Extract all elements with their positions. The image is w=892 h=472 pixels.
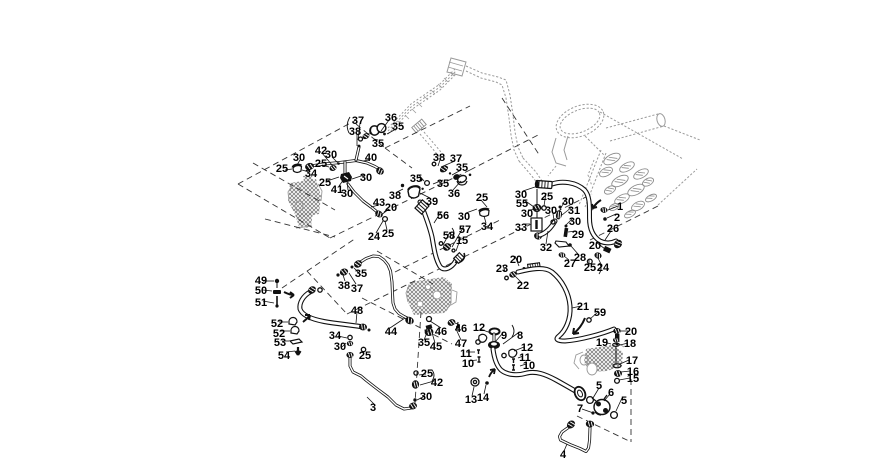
- svg-text:15: 15: [627, 373, 639, 385]
- svg-text:15: 15: [456, 235, 468, 247]
- svg-text:48: 48: [351, 305, 363, 317]
- svg-text:46: 46: [435, 326, 447, 338]
- svg-text:9: 9: [501, 330, 507, 342]
- svg-text:30: 30: [341, 188, 353, 200]
- svg-text:38: 38: [389, 190, 401, 202]
- svg-text:46: 46: [455, 323, 467, 335]
- svg-text:53: 53: [274, 337, 286, 349]
- svg-text:25: 25: [276, 163, 288, 175]
- svg-text:33: 33: [515, 222, 527, 234]
- svg-text:43: 43: [373, 197, 385, 209]
- svg-text:25: 25: [541, 191, 553, 203]
- svg-text:27: 27: [564, 258, 576, 270]
- svg-text:35: 35: [392, 121, 404, 133]
- svg-text:25: 25: [359, 350, 371, 362]
- svg-text:18: 18: [624, 338, 636, 350]
- svg-text:26: 26: [607, 223, 619, 235]
- svg-text:30: 30: [569, 216, 581, 228]
- svg-text:51: 51: [255, 297, 267, 309]
- svg-text:54: 54: [278, 350, 291, 362]
- svg-text:35: 35: [410, 173, 422, 185]
- svg-text:20: 20: [625, 326, 637, 338]
- svg-text:20: 20: [589, 240, 601, 252]
- svg-text:38: 38: [338, 280, 350, 292]
- svg-text:30: 30: [293, 152, 305, 164]
- svg-text:44: 44: [385, 326, 398, 338]
- svg-text:37: 37: [351, 283, 363, 295]
- svg-text:30: 30: [360, 172, 372, 184]
- svg-text:36: 36: [448, 188, 460, 200]
- svg-text:30: 30: [458, 211, 470, 223]
- svg-text:5: 5: [621, 395, 627, 407]
- svg-text:20: 20: [385, 202, 397, 214]
- svg-text:19: 19: [596, 337, 608, 349]
- svg-text:25: 25: [476, 192, 488, 204]
- svg-text:42: 42: [431, 377, 443, 389]
- svg-text:40: 40: [365, 152, 377, 164]
- svg-text:29: 29: [572, 229, 584, 241]
- svg-text:24: 24: [368, 231, 381, 243]
- svg-text:24: 24: [597, 262, 610, 274]
- svg-text:12: 12: [473, 322, 485, 334]
- svg-text:25: 25: [382, 228, 394, 240]
- svg-text:10: 10: [462, 358, 474, 370]
- svg-text:38: 38: [433, 152, 445, 164]
- svg-text:56: 56: [437, 210, 449, 222]
- svg-text:58: 58: [443, 230, 455, 242]
- svg-text:45: 45: [430, 341, 442, 353]
- svg-text:34: 34: [481, 221, 494, 233]
- svg-text:10: 10: [523, 360, 535, 372]
- svg-text:30: 30: [545, 205, 557, 217]
- svg-text:38: 38: [349, 126, 361, 138]
- svg-text:32: 32: [540, 242, 552, 254]
- svg-text:35: 35: [372, 138, 384, 150]
- svg-text:30: 30: [420, 391, 432, 403]
- svg-text:30: 30: [334, 341, 346, 353]
- svg-text:4: 4: [560, 449, 567, 461]
- svg-text:21: 21: [577, 301, 589, 313]
- svg-text:35: 35: [456, 162, 468, 174]
- svg-text:39: 39: [426, 196, 438, 208]
- svg-text:35: 35: [355, 268, 367, 280]
- svg-text:8: 8: [517, 330, 523, 342]
- svg-text:7: 7: [577, 403, 583, 415]
- svg-text:34: 34: [305, 168, 318, 180]
- svg-text:20: 20: [510, 254, 522, 266]
- svg-text:14: 14: [477, 392, 490, 404]
- svg-text:6: 6: [608, 387, 614, 399]
- svg-text:30: 30: [521, 208, 533, 220]
- svg-text:13: 13: [465, 394, 477, 406]
- svg-text:59: 59: [594, 307, 606, 319]
- svg-text:25: 25: [584, 262, 596, 274]
- svg-text:22: 22: [517, 280, 529, 292]
- svg-text:35: 35: [418, 337, 430, 349]
- svg-text:5: 5: [596, 380, 602, 392]
- svg-text:25: 25: [319, 177, 331, 189]
- svg-text:50: 50: [255, 285, 267, 297]
- svg-text:23: 23: [496, 263, 508, 275]
- svg-text:3: 3: [370, 402, 376, 414]
